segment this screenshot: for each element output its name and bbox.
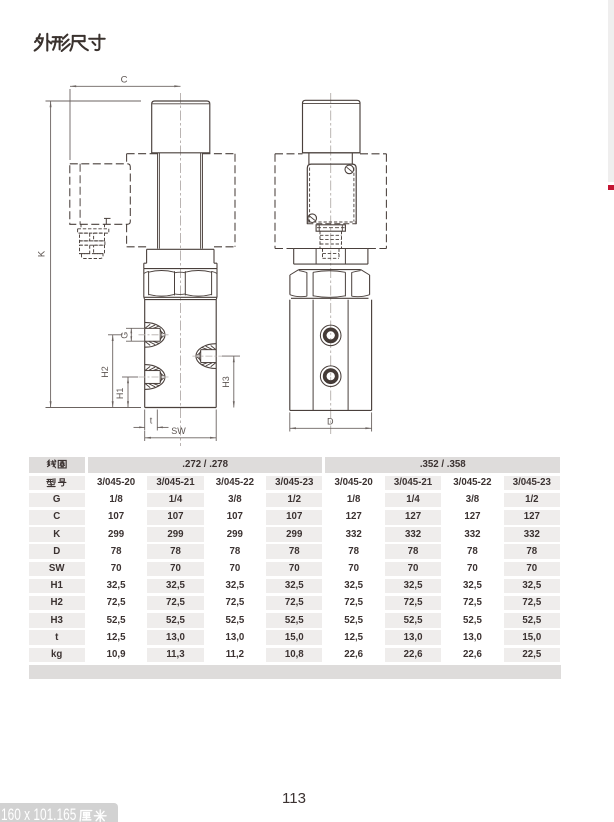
svg-text:D: D	[327, 416, 334, 426]
svg-text:H1: H1	[115, 388, 125, 400]
svg-text:SW: SW	[171, 426, 186, 436]
svg-text:K: K	[37, 250, 48, 257]
svg-text:t: t	[150, 416, 153, 426]
svg-text:H2: H2	[100, 366, 110, 378]
svg-text:C: C	[121, 75, 128, 86]
svg-text:G: G	[120, 332, 130, 339]
svg-text:H3: H3	[221, 376, 231, 388]
